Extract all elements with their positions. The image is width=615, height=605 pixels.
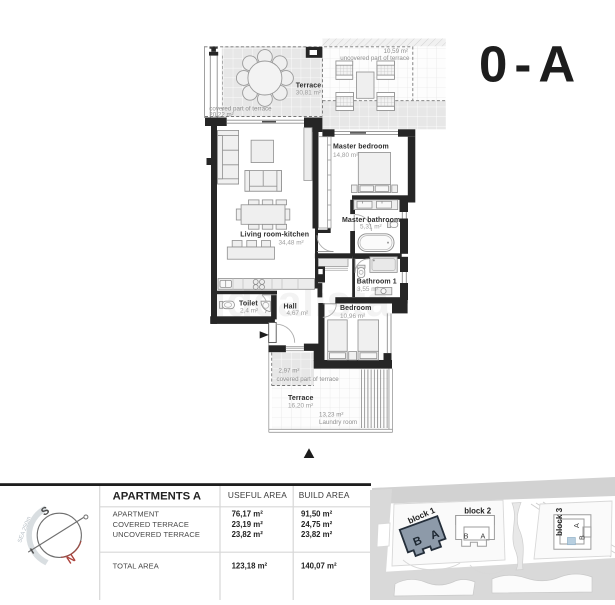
svg-text:3,55 m²: 3,55 m² bbox=[357, 286, 379, 293]
svg-text:B: B bbox=[464, 531, 469, 540]
svg-text:34,48 m²: 34,48 m² bbox=[278, 239, 303, 246]
svg-text:Bathroom 1: Bathroom 1 bbox=[357, 279, 397, 286]
svg-text:23,82 m²: 23,82 m² bbox=[301, 530, 333, 539]
svg-text:23,19 m²: 23,19 m² bbox=[232, 520, 264, 529]
svg-text:30,81 m²: 30,81 m² bbox=[296, 90, 321, 97]
svg-text:uncovered part of terrace: uncovered part of terrace bbox=[340, 55, 410, 62]
svg-text:APARTMENT: APARTMENT bbox=[113, 510, 160, 519]
svg-text:Master bedroom: Master bedroom bbox=[333, 144, 389, 151]
svg-text:10,96 m²: 10,96 m² bbox=[340, 313, 365, 320]
svg-text:91,50 m²: 91,50 m² bbox=[301, 510, 333, 519]
svg-text:16,20 m²: 16,20 m² bbox=[288, 403, 313, 410]
svg-text:10,59 m²: 10,59 m² bbox=[384, 48, 408, 55]
svg-text:Terrace: Terrace bbox=[288, 395, 313, 402]
svg-text:UNCOVERED TERRACE: UNCOVERED TERRACE bbox=[113, 530, 200, 539]
svg-text:Terrace: Terrace bbox=[296, 82, 321, 89]
svg-text:5,31 m²: 5,31 m² bbox=[360, 224, 382, 231]
svg-text:BUILD AREA: BUILD AREA bbox=[299, 490, 350, 500]
svg-text:COVERED TERRACE: COVERED TERRACE bbox=[113, 520, 189, 529]
svg-text:A: A bbox=[572, 523, 581, 528]
svg-text:USEFUL AREA: USEFUL AREA bbox=[228, 490, 287, 500]
svg-text:APARTMENTS A: APARTMENTS A bbox=[113, 491, 202, 503]
svg-text:B: B bbox=[577, 535, 586, 540]
svg-text:13,23 m²: 13,23 m² bbox=[319, 412, 343, 419]
svg-text:23,82 m²: 23,82 m² bbox=[232, 530, 264, 539]
svg-text:4,67 m²: 4,67 m² bbox=[287, 310, 309, 317]
svg-text:2,4 m²: 2,4 m² bbox=[240, 307, 258, 314]
svg-text:Living room-kitchen: Living room-kitchen bbox=[240, 231, 309, 238]
svg-text:block 3: block 3 bbox=[555, 507, 564, 536]
svg-text:24,75 m²: 24,75 m² bbox=[301, 520, 333, 529]
svg-text:140,07 m²: 140,07 m² bbox=[301, 562, 337, 571]
svg-text:2,97 m²: 2,97 m² bbox=[279, 368, 300, 375]
svg-text:Laundry room: Laundry room bbox=[319, 419, 357, 426]
svg-text:123,18 m²: 123,18 m² bbox=[232, 562, 268, 571]
svg-text:covered part of terrace: covered part of terrace bbox=[277, 376, 340, 383]
svg-text:TOTAL AREA: TOTAL AREA bbox=[113, 562, 159, 571]
svg-text:76,17 m²: 76,17 m² bbox=[232, 510, 264, 519]
svg-text:block 2: block 2 bbox=[464, 507, 492, 516]
svg-text:14,80 m²: 14,80 m² bbox=[333, 152, 358, 159]
svg-text:Bedroom: Bedroom bbox=[340, 305, 371, 312]
svg-text:0-A: 0-A bbox=[479, 36, 582, 93]
svg-text:A: A bbox=[481, 531, 486, 540]
